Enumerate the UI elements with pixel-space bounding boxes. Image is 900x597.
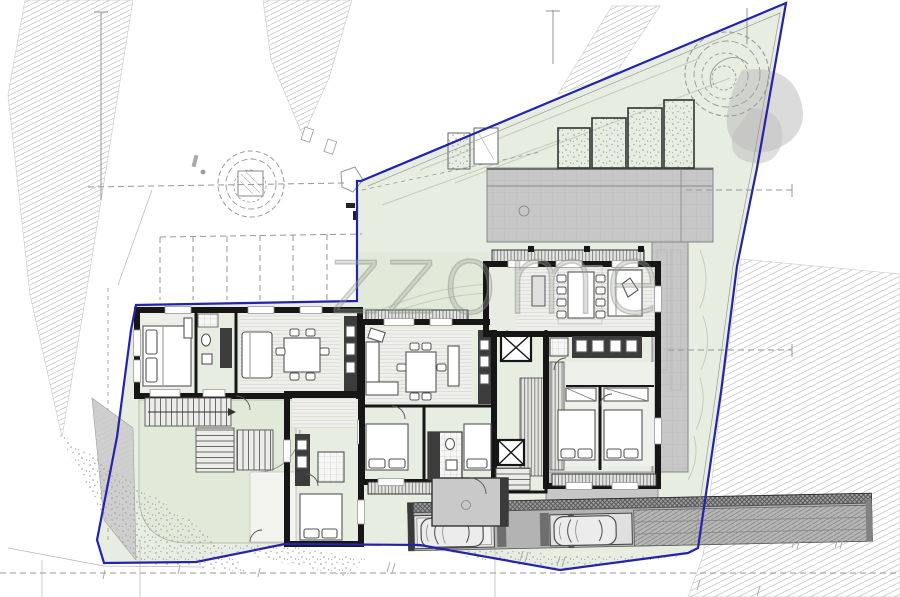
bed-b2 <box>464 424 491 470</box>
parking-vestibule <box>432 478 508 526</box>
bed-c1 <box>558 410 595 460</box>
elevator-icon-2 <box>498 440 524 465</box>
ramp <box>634 505 873 546</box>
bathroom-b <box>428 432 462 480</box>
bed-b1 <box>366 424 408 470</box>
cabinet-b <box>448 346 459 386</box>
car-2 <box>554 513 617 548</box>
kitchenette <box>295 434 310 486</box>
plan-svg <box>0 0 900 597</box>
roof-terrace-top <box>487 168 713 242</box>
sofa-c <box>608 270 642 316</box>
neighbour-band-topleft <box>8 0 133 437</box>
tree-shadow <box>727 69 803 163</box>
neighbour-wedge-top <box>263 0 352 136</box>
sofa-a <box>242 332 272 378</box>
kitchen-a <box>344 316 357 392</box>
wardrobes-c <box>566 388 648 401</box>
kitchen-b <box>478 330 491 404</box>
bed-c2 <box>604 410 642 460</box>
kitchen-c <box>572 336 642 358</box>
courtyard <box>359 252 489 318</box>
bed-studio <box>300 494 342 540</box>
elevator-icon <box>501 334 531 361</box>
site-plan-drawing: zzome <box>0 0 900 597</box>
